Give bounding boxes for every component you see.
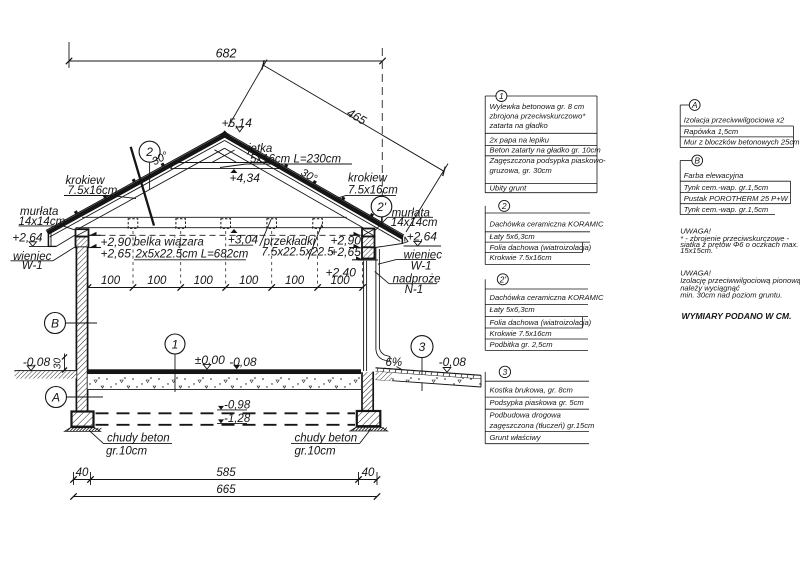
svg-text:2x papa na lepiku: 2x papa na lepiku xyxy=(489,136,550,145)
svg-text:Krokwie 7.5x16cm: Krokwie 7.5x16cm xyxy=(490,329,552,338)
svg-text:Mur z bloczków betonowych 25cm: Mur z bloczków betonowych 25cm xyxy=(684,138,800,147)
svg-text:min. 30cm nad poziom gruntu.: min. 30cm nad poziom gruntu. xyxy=(680,291,782,300)
svg-text:7.5x16cm: 7.5x16cm xyxy=(348,185,398,197)
svg-text:Tynk cem.-wap. gr.1,5cm: Tynk cem.-wap. gr.1,5cm xyxy=(684,205,768,214)
svg-text:A: A xyxy=(51,390,60,404)
svg-text:Beton zatarty na gładko gr. 10: Beton zatarty na gładko gr. 10cm xyxy=(490,146,601,155)
svg-text:Ubity grunt: Ubity grunt xyxy=(490,183,528,192)
svg-text:+2,65: +2,65 xyxy=(101,247,132,261)
svg-text:W-1: W-1 xyxy=(22,260,43,272)
svg-text:+2,40: +2,40 xyxy=(326,266,357,280)
svg-text:100: 100 xyxy=(239,275,259,287)
svg-text:7.5x16cm: 7.5x16cm xyxy=(68,185,118,197)
svg-text:6%: 6% xyxy=(386,357,403,369)
svg-text:belka wiązara: belka wiązara xyxy=(134,236,204,248)
svg-text:Dachówka ceramiczna KORAMIC: Dachówka ceramiczna KORAMIC xyxy=(490,220,604,229)
svg-text:Folia dachowa (wiatroizolacja): Folia dachowa (wiatroizolacja) xyxy=(490,318,592,327)
svg-text:Łaty 5x6,3cm: Łaty 5x6,3cm xyxy=(490,232,535,241)
svg-text:WYMIARY PODANO W CM.: WYMIARY PODANO W CM. xyxy=(682,311,792,321)
svg-text:krokiew: krokiew xyxy=(348,173,388,185)
svg-text:+2,65: +2,65 xyxy=(331,245,362,259)
svg-text:100: 100 xyxy=(285,275,305,287)
svg-text:100: 100 xyxy=(194,275,214,287)
svg-text:Tynk cem.-wap. gr.1,5cm: Tynk cem.-wap. gr.1,5cm xyxy=(684,183,768,192)
svg-text:Zagęszczona podsypka piaskowo-: Zagęszczona podsypka piaskowo- xyxy=(489,156,607,165)
svg-text:Podsypka piaskowa gr. 5cm: Podsypka piaskowa gr. 5cm xyxy=(490,398,584,407)
svg-text:chudy beton: chudy beton xyxy=(295,433,358,445)
svg-text:Łaty 5x6,3cm: Łaty 5x6,3cm xyxy=(490,305,535,314)
svg-text:100: 100 xyxy=(101,275,121,287)
svg-text:3: 3 xyxy=(503,367,508,377)
svg-text:682: 682 xyxy=(216,47,237,61)
svg-text:40: 40 xyxy=(362,467,375,479)
svg-text:B: B xyxy=(51,316,59,330)
svg-text:A: A xyxy=(691,100,698,110)
svg-text:-1,28: -1,28 xyxy=(224,413,251,425)
svg-text:-0,08: -0,08 xyxy=(439,355,467,369)
svg-text:Wylewka betonowa gr. 8 cm: Wylewka betonowa gr. 8 cm xyxy=(490,102,585,111)
svg-text:Podbudowa drogowa: Podbudowa drogowa xyxy=(490,411,561,420)
svg-text:-0,98: -0,98 xyxy=(224,400,251,412)
svg-text:zatarta na gładko: zatarta na gładko xyxy=(489,121,548,130)
svg-text:Folia dachowa (wiatroizolacja): Folia dachowa (wiatroizolacja) xyxy=(490,243,592,252)
svg-text:N-1: N-1 xyxy=(405,284,424,296)
svg-text:-0,08: -0,08 xyxy=(229,355,257,369)
svg-text:585: 585 xyxy=(216,467,236,479)
svg-text:gr.10cm: gr.10cm xyxy=(295,446,337,458)
svg-text:+4,34: +4,34 xyxy=(230,171,261,185)
svg-text:7.5x22.5x22.5: 7.5x22.5x22.5 xyxy=(261,247,334,259)
svg-text:Dachówka ceramiczna KORAMIC: Dachówka ceramiczna KORAMIC xyxy=(490,293,604,302)
svg-text:Pustak POROTHERM 25 P+W: Pustak POROTHERM 25 P+W xyxy=(684,194,789,203)
svg-text:Rapówka 1,5cm: Rapówka 1,5cm xyxy=(684,127,738,136)
svg-text:Podbitka gr. 2,5cm: Podbitka gr. 2,5cm xyxy=(490,340,553,349)
svg-text:gr.10cm: gr.10cm xyxy=(106,446,148,458)
svg-text:chudy beton: chudy beton xyxy=(107,433,170,445)
svg-text:2x5x22.5cm L=682cm: 2x5x22.5cm L=682cm xyxy=(135,248,249,260)
svg-text:15x15cm.: 15x15cm. xyxy=(680,246,713,255)
svg-text:30: 30 xyxy=(53,358,64,370)
svg-text:zagęszczona (tłuczeń) gr.15cm: zagęszczona (tłuczeń) gr.15cm xyxy=(489,421,595,430)
svg-text:-0,08: -0,08 xyxy=(23,355,51,369)
svg-text:Kostka brukowa, gr. 8cm: Kostka brukowa, gr. 8cm xyxy=(490,385,573,394)
svg-text:W-1: W-1 xyxy=(411,260,432,272)
svg-text:2': 2' xyxy=(376,200,387,214)
svg-text:+3,04: +3,04 xyxy=(228,233,259,247)
svg-text:zbrojona przeciwskurczowo*: zbrojona przeciwskurczowo* xyxy=(489,111,587,120)
svg-text:665: 665 xyxy=(216,484,236,496)
svg-text:gruzowa, gr. 30cm: gruzowa, gr. 30cm xyxy=(490,166,552,175)
svg-text:Izolacja przeciwwilgociowa x2: Izolacja przeciwwilgociowa x2 xyxy=(684,116,785,125)
svg-text:B: B xyxy=(694,156,700,166)
svg-text:3: 3 xyxy=(419,340,426,354)
svg-text:Krokwie 7.5x16cm: Krokwie 7.5x16cm xyxy=(490,253,552,262)
svg-text:Grunt właściwy: Grunt właściwy xyxy=(490,433,542,442)
svg-text:40: 40 xyxy=(76,467,89,479)
svg-text:1: 1 xyxy=(499,91,504,101)
svg-text:1: 1 xyxy=(172,337,179,351)
svg-text:14x14cm: 14x14cm xyxy=(391,217,438,229)
svg-text:2: 2 xyxy=(501,201,507,211)
svg-text:2': 2' xyxy=(499,274,507,284)
svg-text:+2,64: +2,64 xyxy=(12,230,43,244)
svg-text:100: 100 xyxy=(147,275,167,287)
svg-text:Farba elewacyjna: Farba elewacyjna xyxy=(684,171,744,180)
